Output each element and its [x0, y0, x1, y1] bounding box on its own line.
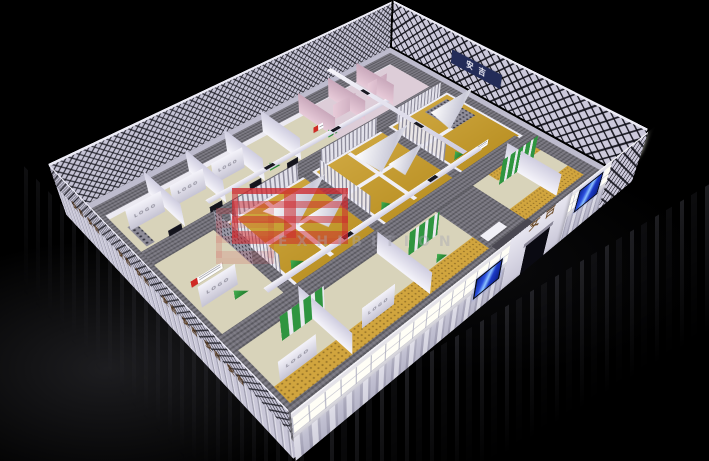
exhibition-hall-model: LOGO LOGO LOGO LOGO LOGO LOGO — [66, 47, 630, 458]
reception-counter — [479, 221, 506, 241]
render-canvas: LOGO LOGO LOGO LOGO LOGO LOGO — [0, 0, 709, 461]
stage-3d: LOGO LOGO LOGO LOGO LOGO LOGO — [0, 0, 709, 461]
